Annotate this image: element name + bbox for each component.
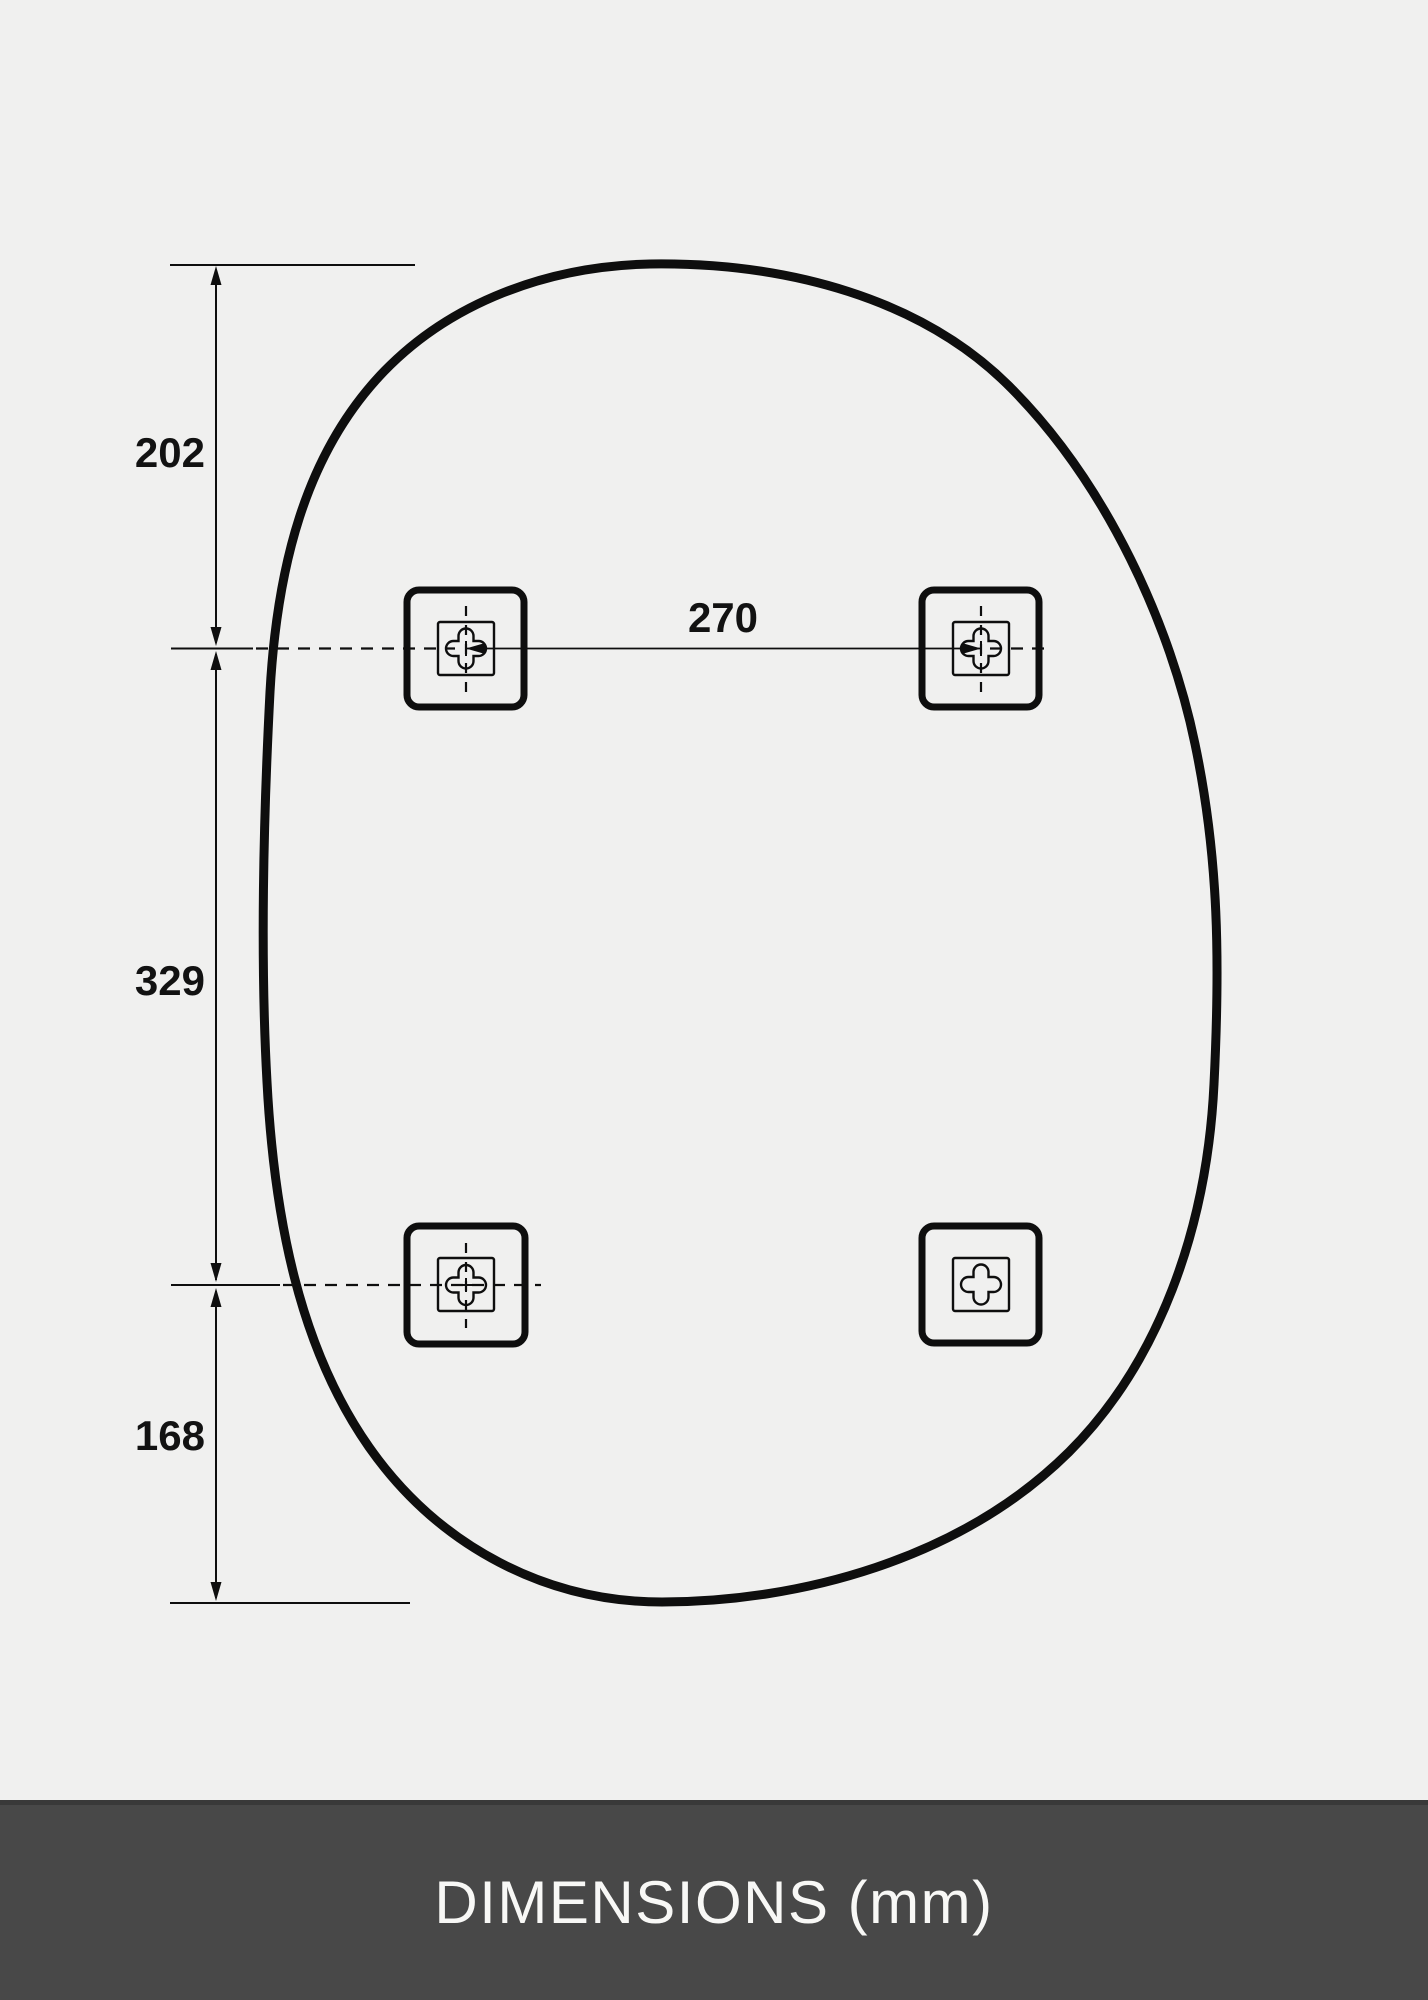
footer-bar: DIMENSIONS (mm) — [0, 1800, 1428, 2000]
dim-270-label: 270 — [688, 594, 758, 641]
dim-270-arrow-left-icon — [466, 643, 485, 654]
dim-329-arrow-up-icon — [211, 651, 222, 670]
dim-329-arrow-down-icon — [211, 1263, 222, 1282]
dim-168-arrow-up-icon — [211, 1288, 222, 1307]
clover-cutout-icon — [961, 1265, 1001, 1305]
dim-168-label: 168 — [135, 1412, 205, 1459]
dimension-diagram: 202 329 168 270 — [0, 0, 1428, 1800]
dim-270-arrow-right-icon — [962, 643, 981, 654]
bracket-outer-square — [922, 1226, 1039, 1343]
dim-329-label: 329 — [135, 957, 205, 1004]
diagram-canvas: 202 329 168 270 — [0, 0, 1428, 1800]
mounting-bracket-bottom-right — [922, 1226, 1039, 1343]
footer-title: DIMENSIONS (mm) — [434, 1868, 993, 1937]
dim-202-arrow-down-icon — [211, 627, 222, 646]
dim-202-label: 202 — [135, 429, 205, 476]
dim-168-arrow-down-icon — [211, 1582, 222, 1601]
dim-202-arrow-up-icon — [211, 266, 222, 285]
mirror-outline — [263, 264, 1217, 1602]
center-cross-mark — [459, 1278, 473, 1292]
